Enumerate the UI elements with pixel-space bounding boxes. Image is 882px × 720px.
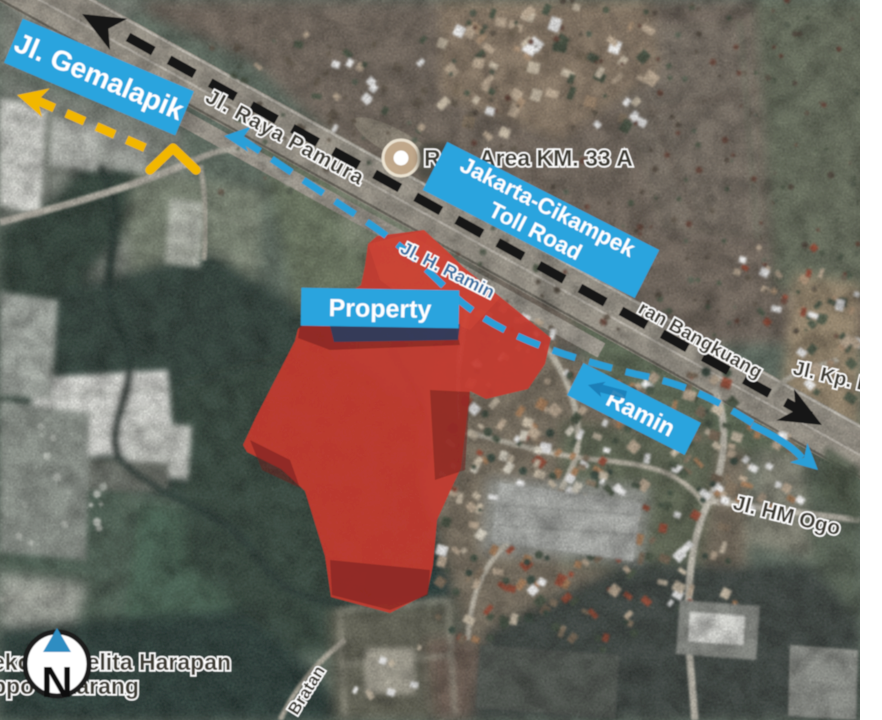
svg-text:N: N bbox=[41, 658, 73, 707]
svg-text:Area KM. 33 A: Area KM. 33 A bbox=[479, 145, 633, 171]
svg-text:Property: Property bbox=[328, 294, 431, 324]
